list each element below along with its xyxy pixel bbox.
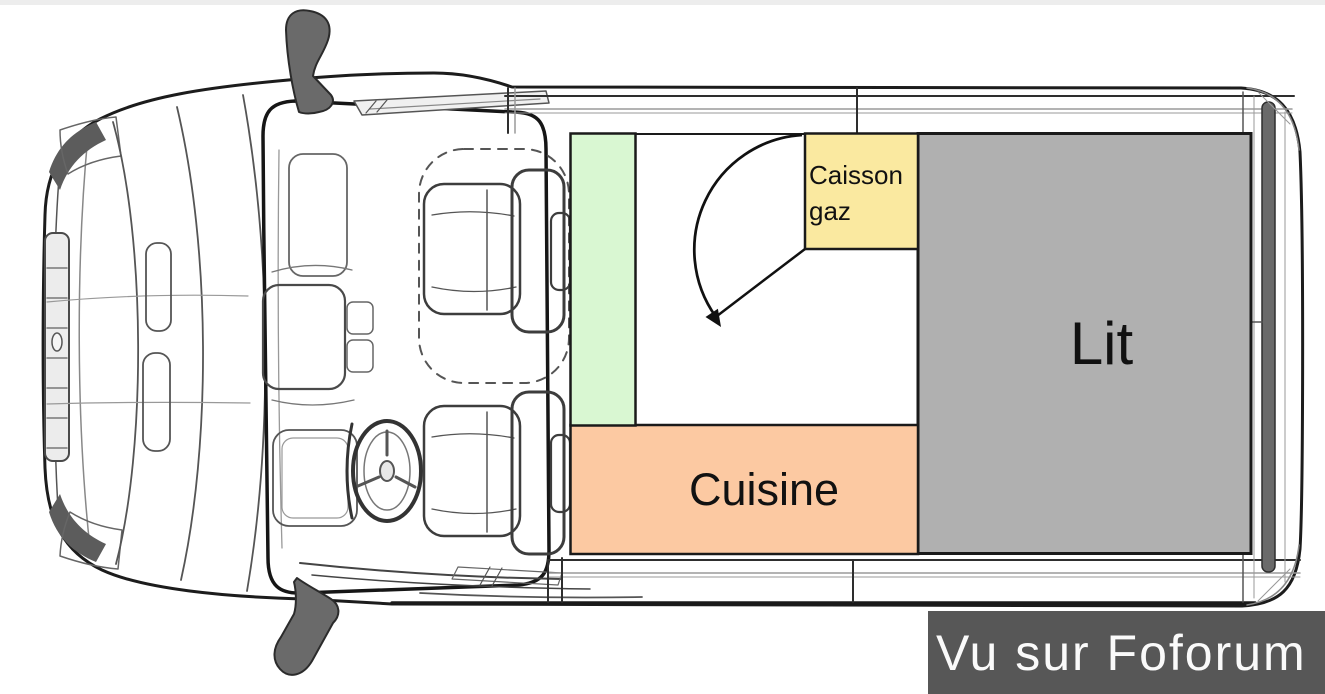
watermark-text: Vu sur Foforum: [936, 624, 1307, 682]
front-grille: [45, 233, 69, 461]
floorplan-svg: [0, 0, 1325, 694]
zone-caisson-gaz: [805, 134, 918, 250]
zone-cuisine: [571, 425, 919, 554]
zone-lit: [918, 134, 1251, 554]
top-edge-artifact: [0, 0, 1325, 5]
watermark-banner: Vu sur Foforum: [928, 611, 1325, 694]
zone-green-cabinet: [571, 134, 636, 426]
camper-van-floorplan: Caisson gaz Lit Cuisine Vu sur Foforum: [0, 0, 1325, 694]
rear-window-strip: [1262, 102, 1275, 572]
layout-zones: [571, 134, 1252, 555]
